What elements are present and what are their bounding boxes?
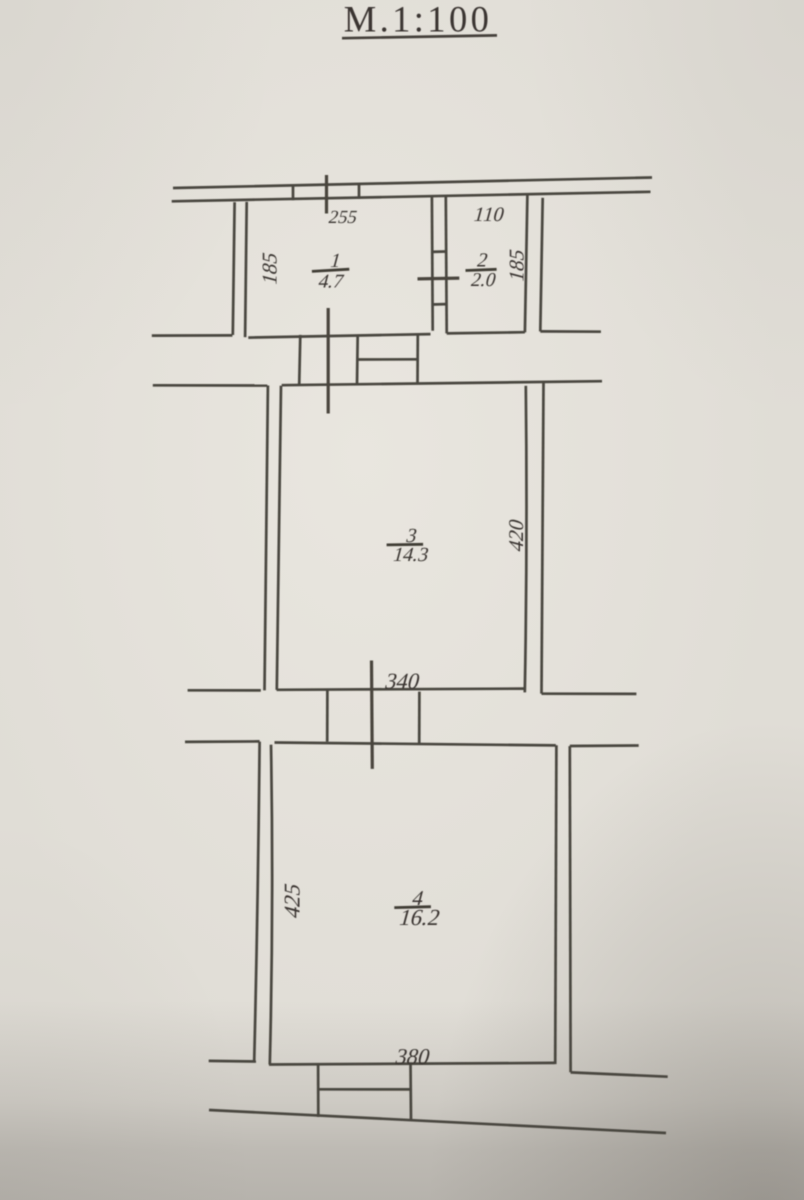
svg-text:185: 185 <box>258 249 282 287</box>
svg-text:185: 185 <box>505 246 529 284</box>
svg-text:380: 380 <box>393 1044 433 1069</box>
svg-text:340: 340 <box>382 669 422 694</box>
svg-text:16.2: 16.2 <box>396 905 443 931</box>
svg-text:М.1:100: М.1:100 <box>344 0 493 40</box>
svg-text:255: 255 <box>326 207 359 228</box>
svg-text:110: 110 <box>471 202 507 226</box>
svg-text:425: 425 <box>280 880 305 920</box>
svg-text:420: 420 <box>504 516 528 554</box>
svg-text:14.3: 14.3 <box>390 544 431 566</box>
